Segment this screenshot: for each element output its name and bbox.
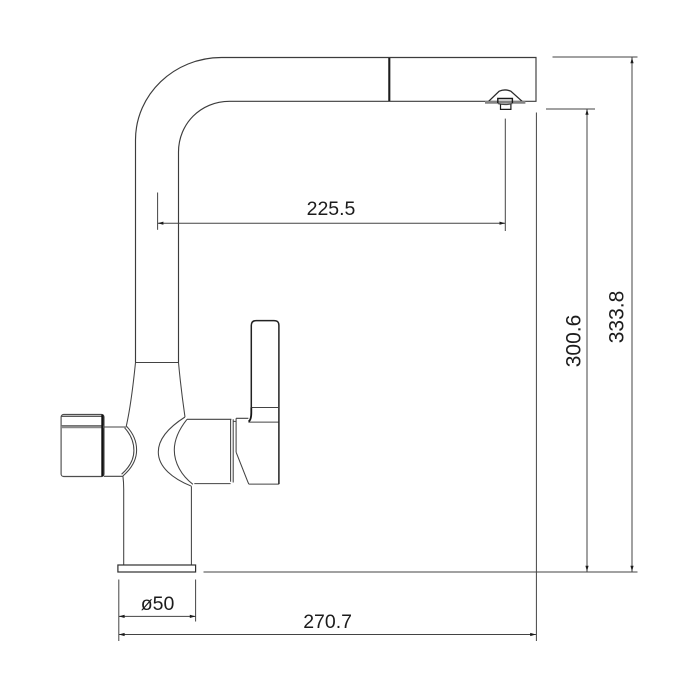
svg-text:300.6: 300.6: [563, 315, 586, 368]
svg-text:ø50: ø50: [141, 593, 175, 615]
svg-text:333.8: 333.8: [606, 291, 629, 344]
svg-text:225.5: 225.5: [307, 198, 356, 220]
svg-text:270.7: 270.7: [303, 611, 352, 633]
